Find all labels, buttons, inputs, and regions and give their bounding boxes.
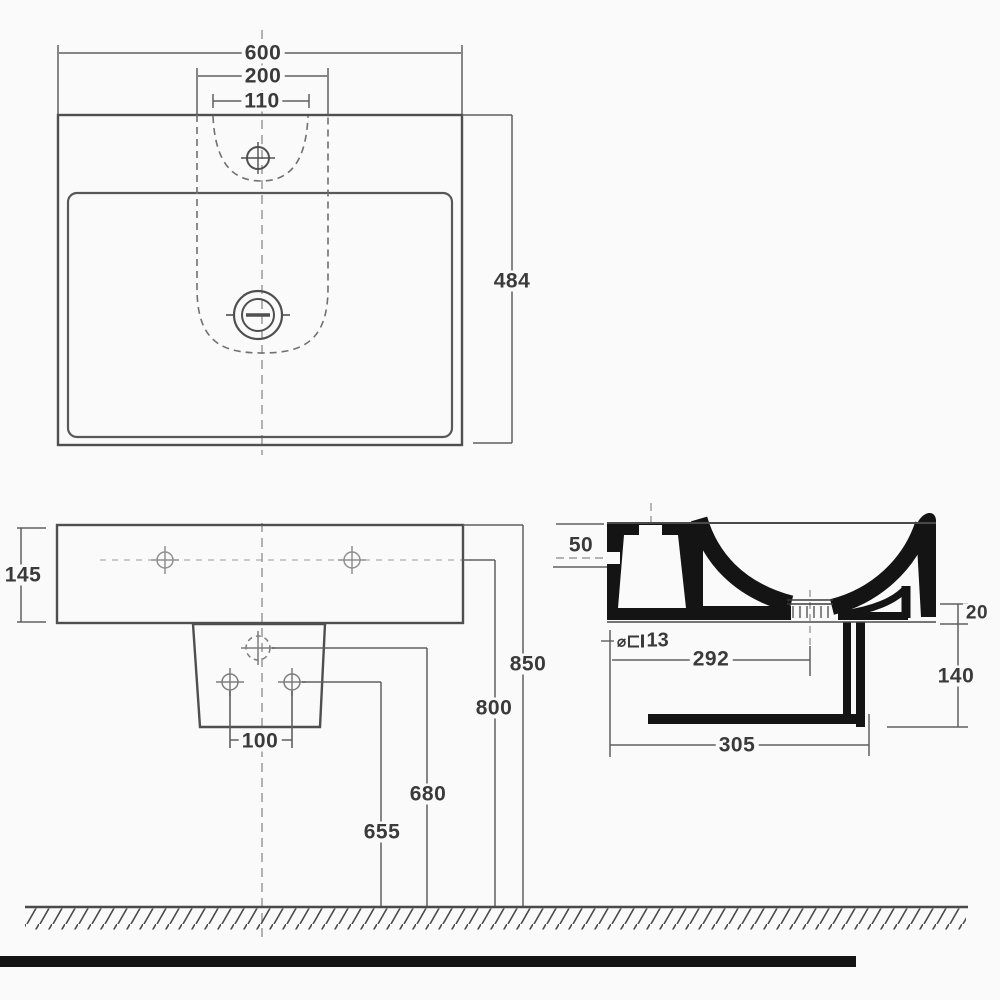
dim-label-projection: 305: [716, 735, 759, 756]
fixing-size-value: 13: [647, 630, 669, 653]
dim-label-680: 680: [407, 784, 450, 805]
waste-pipe-right: [856, 622, 865, 727]
dim-label-bolt-span: 100: [239, 731, 282, 752]
front-drain-symbol: [241, 631, 275, 665]
technical-drawing-page: 600 200 110 484 145 100 655 680 800 850 …: [0, 0, 1000, 1000]
drain-hole-symbol: [226, 291, 290, 339]
bolt-icon: [628, 635, 639, 647]
bolt-pin-icon: [641, 635, 644, 648]
ground-hatch: [25, 909, 966, 930]
dim-label-drop: 140: [935, 666, 978, 687]
dim-label-inner-width: 200: [242, 66, 285, 87]
dim-label-tap-span: 110: [241, 91, 282, 112]
height-dim-connectors: [272, 525, 523, 682]
dim-label-body-height: 145: [2, 565, 45, 586]
diameter-symbol: ⌀: [617, 632, 626, 650]
bottom-bar: [0, 956, 856, 967]
dim-label-655: 655: [361, 822, 404, 843]
top-view: [58, 30, 512, 455]
drawing-canvas: [0, 0, 1000, 1000]
dim-label-top-inset: 50: [566, 535, 596, 556]
tap-hole-symbol: [241, 142, 275, 174]
dim-label-800: 800: [473, 698, 516, 719]
dim-label-overall-width: 600: [242, 43, 285, 64]
fixing-hole-note: ⌀ 13: [615, 630, 671, 653]
dim-label-850: 850: [507, 654, 550, 675]
waste-pipe-left: [843, 622, 851, 715]
dim-label-depth: 484: [491, 271, 534, 292]
shroud-outline: [193, 624, 325, 727]
ground: [0, 907, 968, 967]
dim-label-drain-offset: 292: [690, 649, 733, 670]
dim-label-apron: 20: [963, 604, 991, 623]
waste-pipe-horizontal: [648, 714, 856, 724]
